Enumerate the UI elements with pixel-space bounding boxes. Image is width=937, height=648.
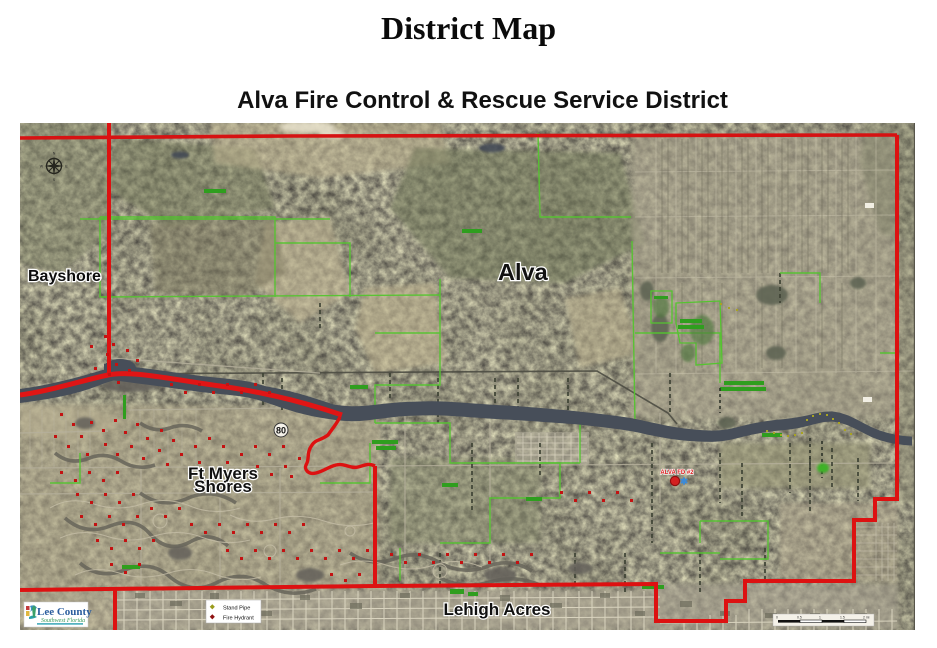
svg-text:80: 80 — [276, 426, 286, 436]
svg-text:0: 0 — [776, 616, 778, 620]
svg-text:W: W — [40, 165, 44, 169]
svg-text:Shores: Shores — [194, 477, 252, 496]
svg-text:Stand Pipe: Stand Pipe — [223, 605, 250, 611]
svg-text:Southwest Florida: Southwest Florida — [41, 618, 85, 624]
svg-text:Lehigh Acres: Lehigh Acres — [443, 600, 550, 619]
svg-text:Fire Hydrant: Fire Hydrant — [223, 615, 254, 621]
svg-text:N: N — [53, 152, 56, 156]
svg-text:2 mi: 2 mi — [863, 616, 870, 620]
svg-text:Lee County: Lee County — [37, 606, 92, 618]
svg-text:ALVA FD #2: ALVA FD #2 — [660, 470, 694, 476]
svg-text:1.5: 1.5 — [840, 616, 845, 620]
svg-text:0.5: 0.5 — [797, 616, 802, 620]
svg-text:1: 1 — [819, 616, 821, 620]
svg-text:Bayshore: Bayshore — [28, 268, 101, 285]
svg-text:Alva: Alva — [498, 259, 549, 285]
